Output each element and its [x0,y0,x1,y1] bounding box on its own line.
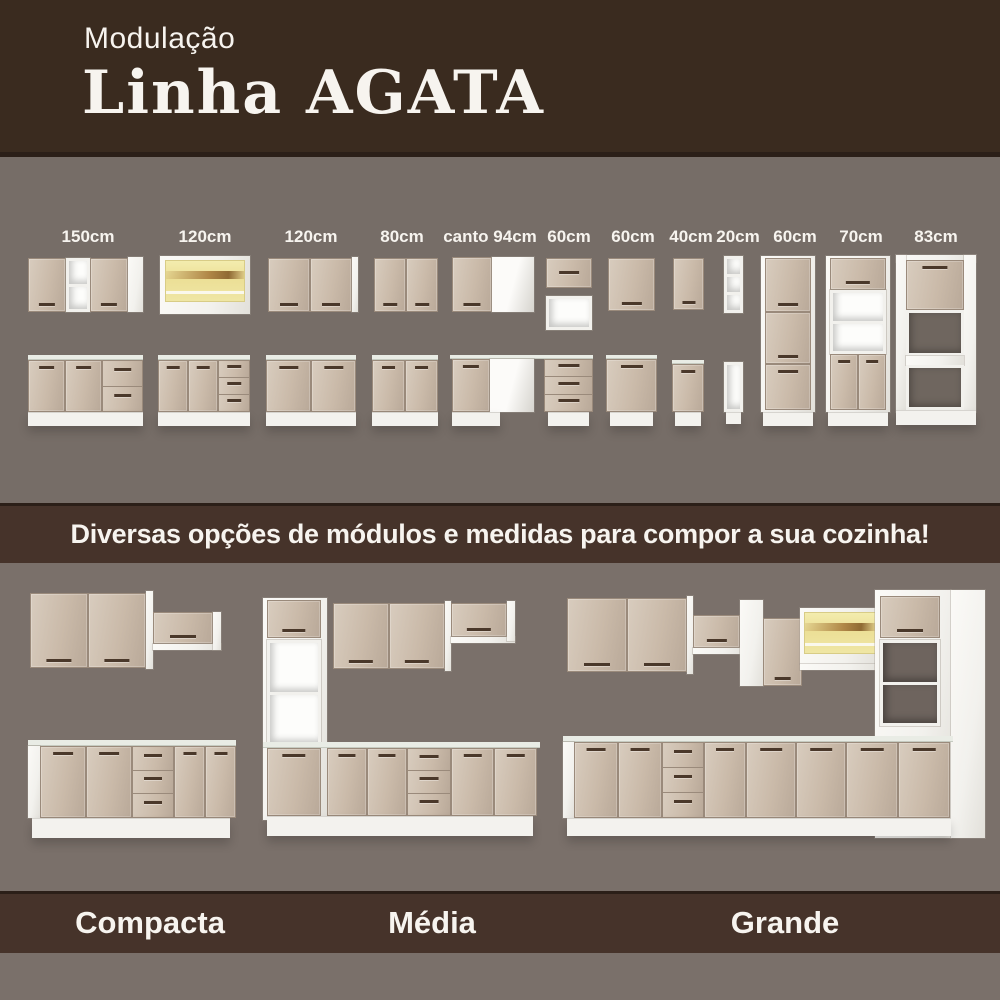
door-handle-icon [682,301,695,304]
door-handle-icon [170,635,196,638]
door-handle-icon [99,752,119,755]
plinth [266,412,356,426]
plinth [567,818,951,836]
drawer [408,749,450,770]
drawer-handle-icon [227,399,241,402]
cabinet-door [374,258,406,312]
drawer-handle-icon [144,777,162,780]
drawer [663,767,703,792]
shelf-compartment [727,295,740,310]
plinth [267,816,533,836]
door-handle-icon [810,748,832,751]
kitchen-label-media: Média [388,905,476,941]
door-handle-icon [415,366,429,369]
door-handle-icon [463,303,480,306]
door-handle-icon [866,360,878,363]
drawer [663,743,703,767]
plinth [675,412,701,426]
cabinet-door [763,618,802,686]
door-handle-icon [587,748,606,751]
door-handle-icon [197,366,210,369]
open-compartment [906,365,964,410]
door-handle-icon [463,365,479,368]
door-handle-icon [383,303,397,306]
door-handle-icon [214,752,227,755]
cabinet-door [188,360,218,412]
shelf-compartment [270,695,318,744]
cabinet-door [452,257,492,312]
cabinet-door [704,742,746,818]
door-handle-icon [620,365,642,368]
drawer-handle-icon [420,800,439,803]
plinth [158,412,250,426]
plinth [763,412,813,426]
cabinet-panel [153,644,221,650]
drawer-handle-icon [420,755,439,758]
drawer [545,376,592,393]
shelf-compartment [833,293,883,321]
door-handle-icon [349,660,373,663]
glass-door [165,260,245,302]
cabinet-door [693,615,740,648]
door-handle-icon [279,366,298,369]
cabinet-door [406,258,438,312]
door-handle-icon [778,303,798,306]
cabinet-door [40,746,86,818]
open-shelf [724,362,743,412]
open-compartment [883,685,937,724]
door-handle-icon [76,366,92,369]
drawer-handle-icon [227,382,241,385]
door-handle-icon [405,660,429,663]
cabinet-door [898,742,950,818]
cabinet-door [28,258,66,312]
drawer-handle-icon [558,399,579,402]
drawer-stack [662,742,704,818]
wood-shelf [166,271,244,279]
drawer-stack [544,359,593,412]
door-handle-icon [324,366,343,369]
plinth [828,412,888,426]
kitchen-label-compacta: Compacta [75,905,225,941]
glass-door [804,612,876,654]
drawer-handle-icon [114,368,132,371]
open-shelf [546,296,592,330]
door-handle-icon [183,752,196,755]
cabinet-door [310,258,352,312]
cabinet-door [268,258,310,312]
door-handle-icon [39,303,55,306]
shelf-compartment [833,324,883,352]
door-handle-icon [282,629,305,632]
cabinet-panel [964,255,976,412]
door-handle-icon [838,360,850,363]
shelf-compartment [270,643,318,692]
cabinet-panel [507,601,515,641]
drawer-stack [407,748,451,816]
open-compartment [883,643,937,682]
drawer [219,361,249,377]
cabinet-panel [213,612,221,650]
open-shelf [880,640,940,726]
door-handle-icon [760,748,782,751]
drawer [133,747,173,770]
cabinet-panel [352,257,358,312]
door-handle-icon [467,628,491,631]
door-handle-icon [378,754,395,757]
cabinet-door [65,360,102,412]
door-handle-icon [104,659,129,662]
drawer-handle-icon [144,801,162,804]
cabinet-door [333,603,389,669]
door-handle-icon [280,303,298,306]
door-handle-icon [774,677,791,680]
drawer-handle-icon [674,800,692,803]
cabinet-panel [896,255,906,412]
drawer [133,770,173,794]
shelf-compartment [69,261,87,284]
cabinet-panel [740,600,763,686]
shelf-compartment [727,259,740,274]
cabinet-door [765,258,811,312]
door-handle-icon [282,754,305,757]
plinth [610,412,653,426]
door-handle-icon [415,303,429,306]
open-shelf [66,258,90,312]
drawer-handle-icon [558,382,579,385]
drawer-handle-icon [144,754,162,757]
cabinet-panel [128,257,143,312]
plinth [372,412,438,426]
furniture-renders [0,0,1000,1000]
drawer-handle-icon [227,365,241,368]
shelf-compartment [549,299,589,327]
cabinet-door [746,742,796,818]
poster: Modulação Linha AGATA 150cm 120cm 120cm … [0,0,1000,1000]
cabinet-door [88,593,146,668]
cabinet-door [205,746,236,818]
glass-shelf-line [805,643,875,646]
cabinet-panel [146,591,153,669]
cabinet-door [765,312,811,364]
door-handle-icon [39,366,55,369]
drawer [408,770,450,792]
cabinet-door [608,258,655,311]
cabinet-door [627,598,687,672]
cabinet-door [672,364,704,412]
cabinet-door [389,603,445,669]
drawer-handle-icon [420,777,439,780]
door-handle-icon [506,754,524,757]
kitchen-label-grande: Grande [731,905,840,941]
door-handle-icon [584,663,610,666]
drawer [219,377,249,394]
door-handle-icon [846,281,870,284]
cabinet-panel [906,356,964,365]
cabinet-door [494,748,537,816]
door-handle-icon [861,748,884,751]
drawer-handle-icon [674,750,692,753]
plinth [28,412,143,426]
drawer [219,394,249,411]
drawer [133,793,173,817]
cabinet-door [451,603,507,637]
door-handle-icon [463,754,481,757]
cabinet-panel [28,746,40,818]
cabinet-door [567,598,627,672]
cabinet-door [451,748,494,816]
cabinet-door [452,359,490,412]
door-handle-icon [167,366,180,369]
cabinet-door [30,593,88,668]
cabinet-door [830,354,858,410]
door-handle-icon [322,303,340,306]
drawer-handle-icon [114,394,132,397]
door-handle-icon [681,370,695,373]
cabinet-door [327,748,367,816]
cabinet-door [618,742,662,818]
cabinet-door [765,364,811,410]
cabinet-door [405,360,438,412]
cabinet-door [267,600,321,638]
cabinet-panel [490,359,534,412]
shelf-compartment [727,277,740,292]
cabinet-door [86,746,132,818]
open-compartment [906,310,964,356]
door-handle-icon [706,639,726,642]
open-shelf [267,640,321,746]
open-shelf [724,256,743,313]
plinth [726,412,741,424]
drawer [408,793,450,815]
door-handle-icon [101,303,117,306]
door-handle-icon [631,748,650,751]
cabinet-panel [492,257,534,312]
wood-shelf [805,623,875,631]
cabinet-panel [951,590,985,838]
cabinet-panel [451,637,515,643]
banner-text: Diversas opções de módulos e medidas par… [0,503,1000,563]
door-handle-icon [778,355,798,358]
door-handle-icon [716,748,734,751]
drawer [545,360,592,376]
drawer-stack [102,360,143,412]
drawer [545,394,592,411]
cabinet-door [90,258,128,312]
cabinet-door [153,612,213,644]
cabinet-door [158,360,188,412]
cabinet-door [174,746,205,818]
shelf-compartment [727,365,740,409]
drawer-handle-icon [558,364,579,367]
door-handle-icon [382,366,396,369]
door-handle-icon [778,370,798,373]
cabinet-door [28,360,65,412]
cabinet-door [796,742,846,818]
shelf-compartment [69,287,87,310]
cabinet-door [906,260,964,310]
drawer [663,792,703,817]
cabinet-door [574,742,618,818]
plinth [32,818,230,838]
plinth [548,412,589,426]
door-handle-icon [338,754,355,757]
door-handle-icon [559,271,579,274]
cabinet-door [267,748,321,816]
cabinet-door [546,258,592,288]
cabinet-door [606,359,657,412]
open-shelf [830,290,886,354]
cabinet-panel [563,742,574,818]
door-handle-icon [913,748,936,751]
cabinet-door [858,354,886,410]
cabinet-door [673,258,704,310]
drawer-handle-icon [674,775,692,778]
cabinet-door [880,596,940,638]
cabinet-door [266,360,311,412]
door-handle-icon [897,629,923,632]
plinth [896,410,976,425]
drawer-stack [218,360,250,412]
cabinet-door [311,360,356,412]
cabinet-door [830,258,886,290]
door-handle-icon [644,663,670,666]
cabinet-panel [693,648,745,654]
door-handle-icon [46,659,71,662]
door-handle-icon [922,266,947,269]
cabinet-panel [800,664,882,670]
cabinet-door [367,748,407,816]
drawer [103,361,142,386]
plinth [452,412,500,426]
drawer-stack [132,746,174,818]
door-handle-icon [53,752,73,755]
glass-shelf-line [166,291,244,294]
door-handle-icon [621,302,641,305]
cabinet-door [846,742,898,818]
cabinet-door [372,360,405,412]
drawer [103,386,142,412]
